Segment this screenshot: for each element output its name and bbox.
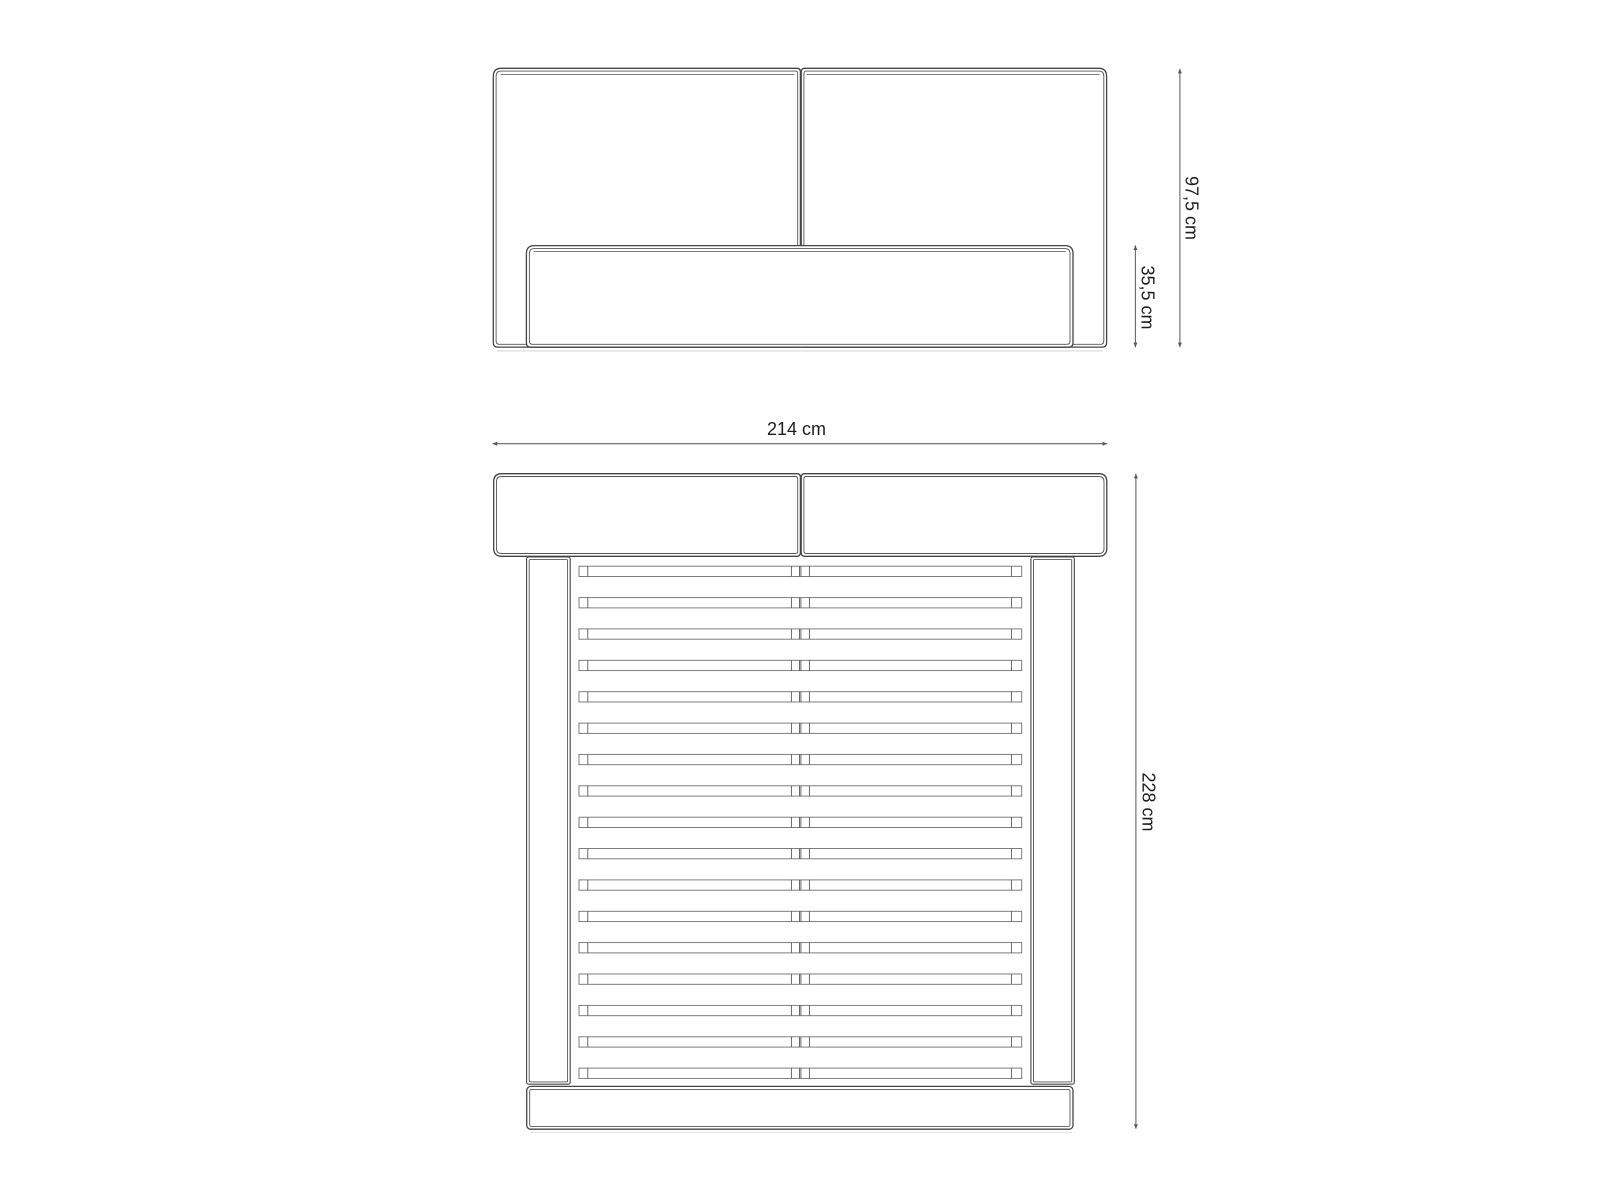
svg-text:35,5 cm: 35,5 cm <box>1138 265 1158 329</box>
svg-text:97,5 cm: 97,5 cm <box>1182 176 1202 240</box>
svg-text:214 cm: 214 cm <box>767 419 826 439</box>
svg-text:228 cm: 228 cm <box>1139 772 1159 831</box>
